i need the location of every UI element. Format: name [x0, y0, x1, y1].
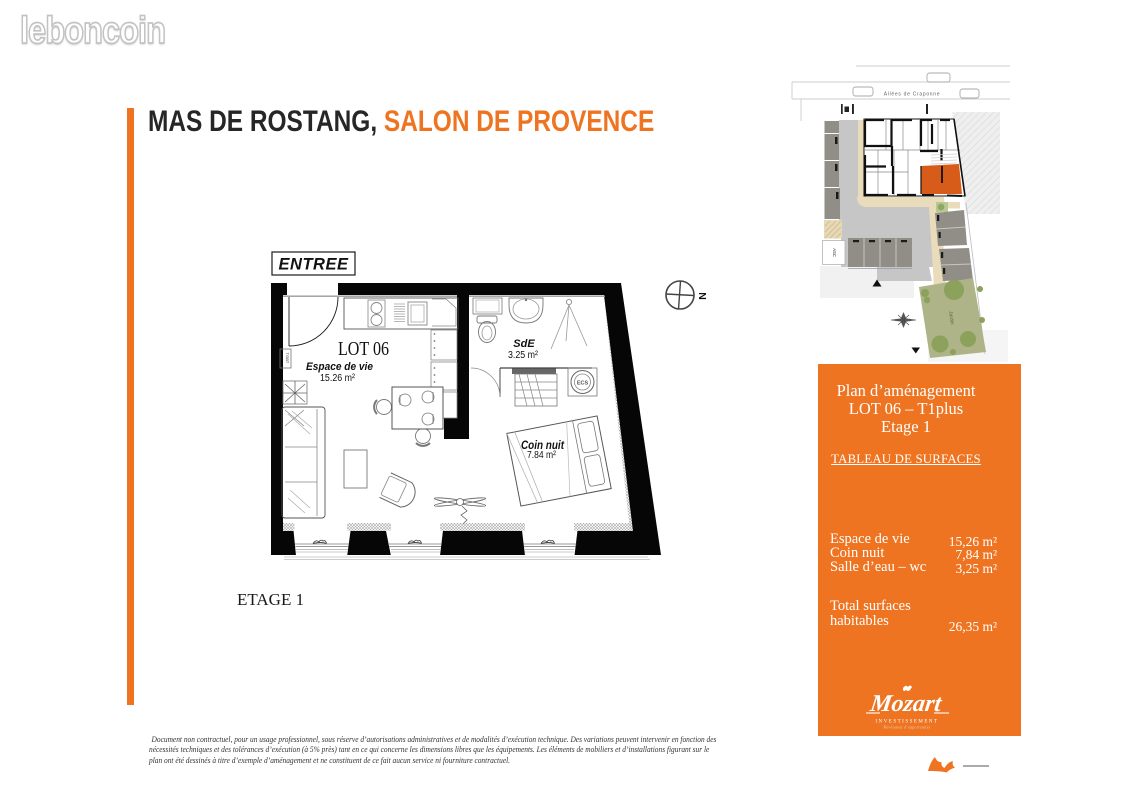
svg-text:ENTREE: ENTREE — [279, 256, 349, 274]
svg-text:Espace de vie: Espace de vie — [306, 361, 373, 373]
svg-text:LOT 06: LOT 06 — [338, 338, 389, 360]
svg-text:15.26 m²: 15.26 m² — [320, 373, 356, 384]
svg-text:ECS: ECS — [577, 381, 589, 387]
svg-text:Allées de Craponne: Allées de Craponne — [884, 92, 941, 98]
svg-text:Révélateur d’opportunités: Révélateur d’opportunités — [883, 726, 930, 730]
svg-text:TGBT: TGBT — [285, 353, 290, 364]
svg-text:ASC: ASC — [832, 248, 837, 257]
svg-text:N: N — [696, 292, 708, 300]
svg-text:7.84 m²: 7.84 m² — [527, 450, 557, 461]
svg-text:INVESTISSEMENT: INVESTISSEMENT — [875, 720, 938, 725]
svg-text:3.25 m²: 3.25 m² — [508, 350, 539, 361]
svg-text:SdE: SdE — [513, 338, 535, 350]
